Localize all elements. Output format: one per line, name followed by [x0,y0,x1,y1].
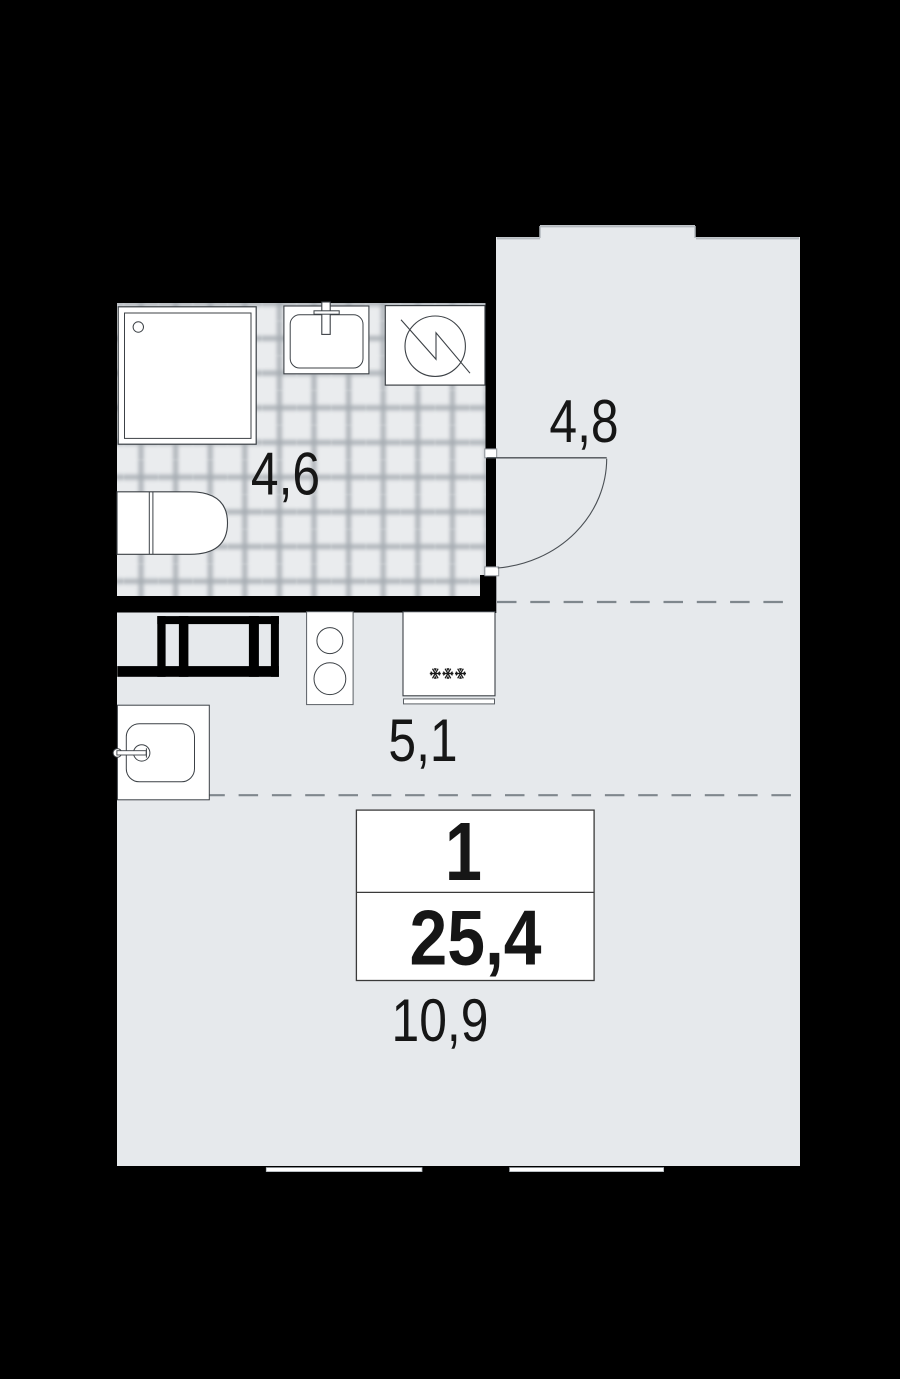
svg-text:1: 1 [445,805,482,898]
svg-text:4,6: 4,6 [251,440,320,507]
svg-text:4,8: 4,8 [549,388,618,455]
svg-text:25,4: 25,4 [409,895,541,981]
svg-text:10,9: 10,9 [392,986,489,1053]
svg-text:5,1: 5,1 [388,707,457,774]
